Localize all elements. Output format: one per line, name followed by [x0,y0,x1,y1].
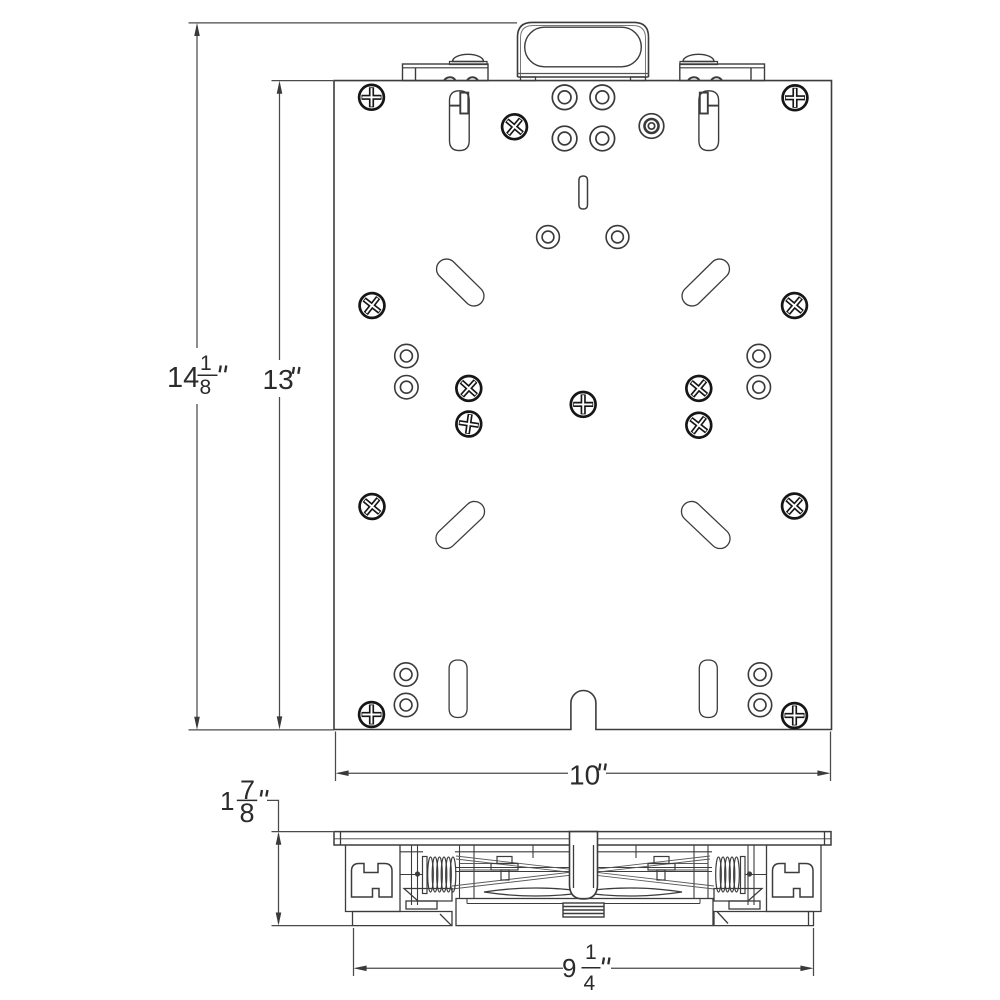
svg-text:10: 10 [569,760,600,791]
svg-text:9: 9 [562,953,576,983]
svg-text:4: 4 [584,972,596,995]
svg-text:8: 8 [200,376,212,399]
svg-text:8: 8 [240,798,255,828]
svg-text:13: 13 [263,364,294,395]
svg-text:1: 1 [585,941,597,964]
svg-text:14: 14 [167,362,199,394]
svg-text:1: 1 [200,352,212,375]
svg-text:1: 1 [220,786,234,816]
